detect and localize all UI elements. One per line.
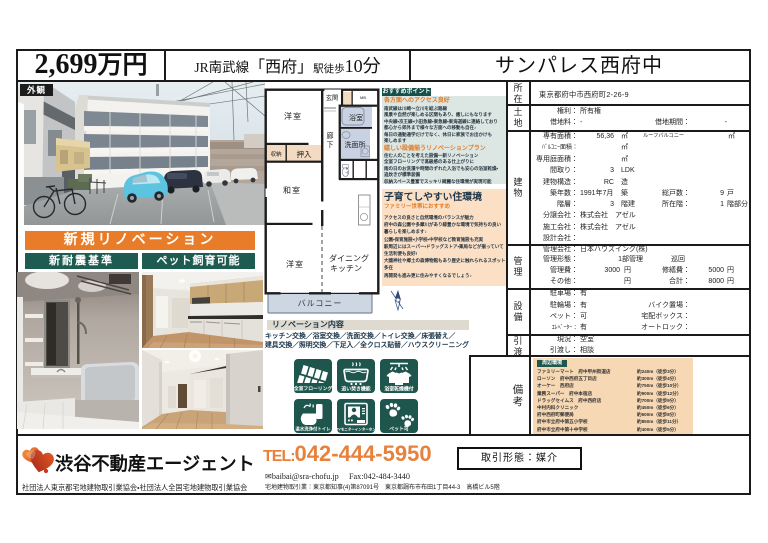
svg-text:収納: 収納	[270, 150, 282, 158]
svg-text:下: 下	[327, 141, 334, 149]
svg-text:浴室: 浴室	[349, 113, 363, 122]
svg-text:洗面所: 洗面所	[345, 140, 366, 149]
svg-text:洋室: 洋室	[284, 111, 302, 121]
svg-text:バルコニー: バルコニー	[298, 299, 343, 308]
svg-text:洋室: 洋室	[286, 259, 304, 269]
svg-text:追い焚き機能: 追い焚き機能	[341, 386, 370, 393]
svg-text:浴室乾燥機付: 浴室乾燥機付	[384, 386, 413, 393]
svg-text:温水洗浄付トイレ: 温水洗浄付トイレ	[295, 426, 331, 433]
svg-text:キッチン: キッチン	[330, 264, 362, 273]
svg-text:ダイニング: ダイニング	[329, 253, 369, 263]
svg-text:和室: 和室	[283, 185, 301, 195]
svg-text:廊: 廊	[327, 131, 334, 140]
svg-text:玄関: 玄関	[326, 94, 338, 102]
svg-text:MB: MB	[360, 95, 366, 100]
svg-text:ペット可: ペット可	[389, 426, 409, 433]
svg-text:TVモニターインターホン: TVモニターインターホン	[337, 427, 375, 432]
svg-text:全室フローリング: 全室フローリング	[294, 385, 332, 392]
svg-text:押入: 押入	[297, 149, 312, 159]
svg-text:イ: イ	[345, 170, 349, 175]
